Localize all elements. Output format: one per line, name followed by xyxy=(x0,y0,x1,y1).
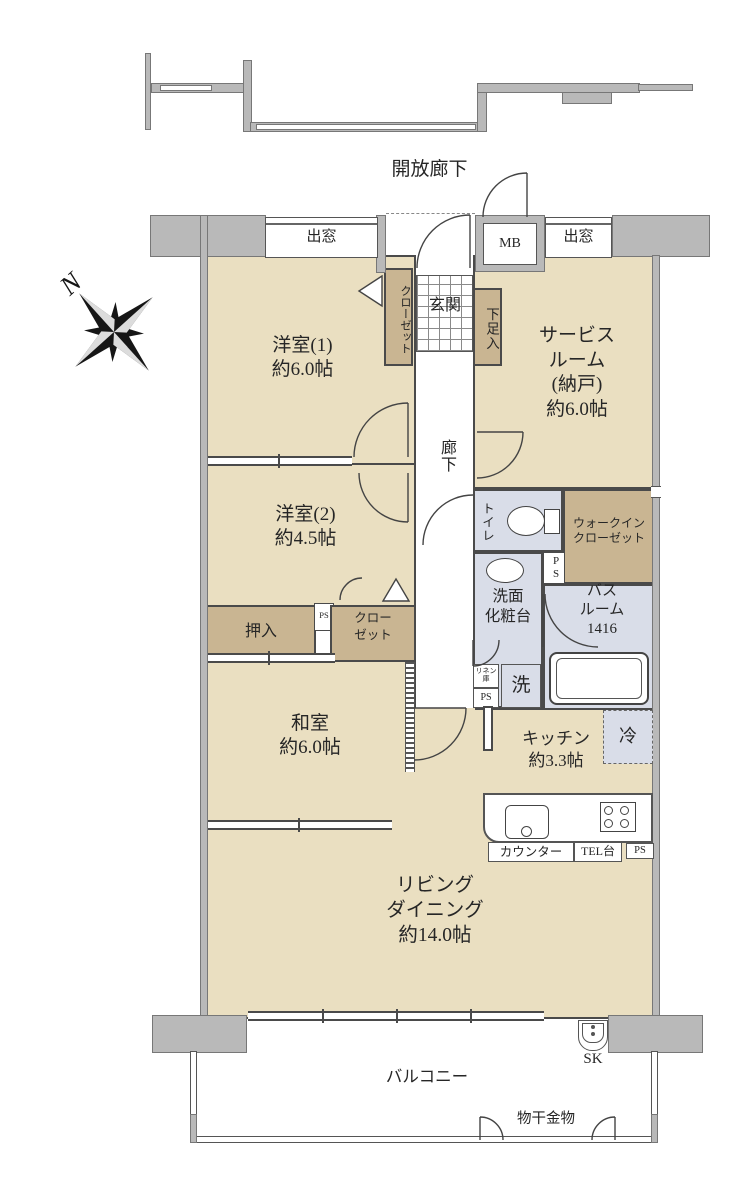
kitchen-faucet-icon xyxy=(521,826,532,837)
balcony-divider xyxy=(651,1114,658,1143)
floor-plan: 開放廊下 N 出窓 xyxy=(0,0,740,1200)
counter-label-box: カウンター xyxy=(488,842,574,862)
bathtub-inner xyxy=(556,658,642,699)
outline-wall xyxy=(477,83,640,93)
stove-burner xyxy=(604,806,613,815)
tel-stand-label: TEL台 xyxy=(581,844,615,859)
toilet-bowl-icon xyxy=(507,506,545,536)
compass-rose: N xyxy=(52,266,172,392)
ps-small-label: PS xyxy=(314,610,334,621)
sliding-door-hatch xyxy=(405,662,415,772)
kitchen-label: キッチン 約3.3帖 xyxy=(505,728,607,772)
linen-label: リネン 庫 xyxy=(476,668,497,683)
window-tick xyxy=(470,1009,472,1023)
corner-block xyxy=(150,215,266,257)
wic-label: ウォークイン クローゼット xyxy=(564,516,654,547)
balcony-rail-bottom xyxy=(190,1136,658,1143)
refrigerator-label: 冷 xyxy=(619,725,637,748)
closet2-label: クロー ゼット xyxy=(334,610,412,644)
meter-box-door-arc xyxy=(483,173,527,217)
entrance-closet-label: クローゼット xyxy=(386,274,412,364)
laundry-space: 洗 xyxy=(501,664,541,708)
linen-cabinet: リネン 庫 xyxy=(473,664,499,688)
partition-western1-2 xyxy=(208,456,352,466)
entrance-threshold xyxy=(386,213,475,214)
right-exterior-wall xyxy=(652,255,660,1019)
bay-window-label: 出窓 xyxy=(306,228,336,247)
corner-block xyxy=(152,1015,247,1053)
window-tick xyxy=(322,1009,324,1023)
laundry-label: 洗 xyxy=(511,674,530,698)
pipe-space-linen: PS xyxy=(473,688,499,708)
western2-label: 洋室(2) 約4.5帖 xyxy=(233,503,378,552)
stove-burner xyxy=(620,819,629,828)
stove-burner xyxy=(604,819,613,828)
laundry-hardware-label: 物干金物 xyxy=(506,1110,586,1129)
left-exterior-wall xyxy=(200,215,208,1019)
vanity-sink-icon xyxy=(486,558,524,583)
kitchen-wall-stub xyxy=(483,706,493,751)
hallway-label: 廊下 xyxy=(430,428,456,484)
open-corridor-label: 開放廊下 xyxy=(372,158,487,182)
tel-stand-box: TEL台 xyxy=(574,842,622,862)
bay-window-glass xyxy=(266,223,377,225)
partition-tick xyxy=(268,651,270,665)
bay-window-glass xyxy=(546,223,611,225)
living-dining-label: リビング ダイニング 約14.0帖 xyxy=(355,874,515,949)
outline-wall xyxy=(638,84,693,91)
corner-block xyxy=(608,1015,703,1053)
toilet-tank-icon xyxy=(544,509,560,534)
toilet-label: トイレ xyxy=(477,494,495,550)
genkan-label: 玄関 xyxy=(417,296,473,316)
corner-block xyxy=(612,215,710,257)
passage-floor xyxy=(412,708,477,830)
vanity-label: 洗面 化粧台 xyxy=(473,587,543,627)
balcony-divider xyxy=(190,1114,197,1143)
service-room-label: サービス ルーム (納戸) 約6.0帖 xyxy=(517,324,637,423)
stove-burner xyxy=(620,806,629,815)
ps-vertical-label: PS xyxy=(545,554,563,582)
entrance-door-arc xyxy=(417,215,470,268)
meter-box: MB xyxy=(483,223,537,265)
western1-label: 洋室(1) 約6.0帖 xyxy=(230,334,375,383)
ps-label: PS xyxy=(634,844,646,857)
bay-window-label: 出窓 xyxy=(563,228,593,247)
compass-north-label: N xyxy=(53,266,89,302)
japanese-room-label: 和室 約6.0帖 xyxy=(240,712,380,761)
ps-label: PS xyxy=(480,692,491,705)
meter-box-label: MB xyxy=(499,235,521,253)
outline-window xyxy=(160,85,212,91)
bath-label: バス ルーム 1416 xyxy=(556,582,648,638)
partition-tick xyxy=(298,818,300,832)
counter-label: カウンター xyxy=(500,844,563,860)
window-tick xyxy=(396,1009,398,1023)
partition-tick xyxy=(278,454,280,468)
slop-sink-dot xyxy=(591,1032,595,1036)
outline-wall xyxy=(562,92,612,104)
balcony-label: バルコニー xyxy=(372,1066,482,1087)
shoe-cabinet-label: 下足入 xyxy=(476,294,500,364)
refrigerator-space: 冷 xyxy=(603,710,653,764)
slop-sink-dot xyxy=(591,1025,595,1029)
oshiire-label: 押入 xyxy=(216,622,306,642)
sk-label: SK xyxy=(568,1050,618,1069)
partition-oshiire-japanese xyxy=(208,653,335,663)
outline-window xyxy=(256,124,476,130)
small-window xyxy=(651,486,661,498)
pipe-space-counter: PS xyxy=(626,843,654,859)
partition-japanese-living xyxy=(208,820,392,830)
